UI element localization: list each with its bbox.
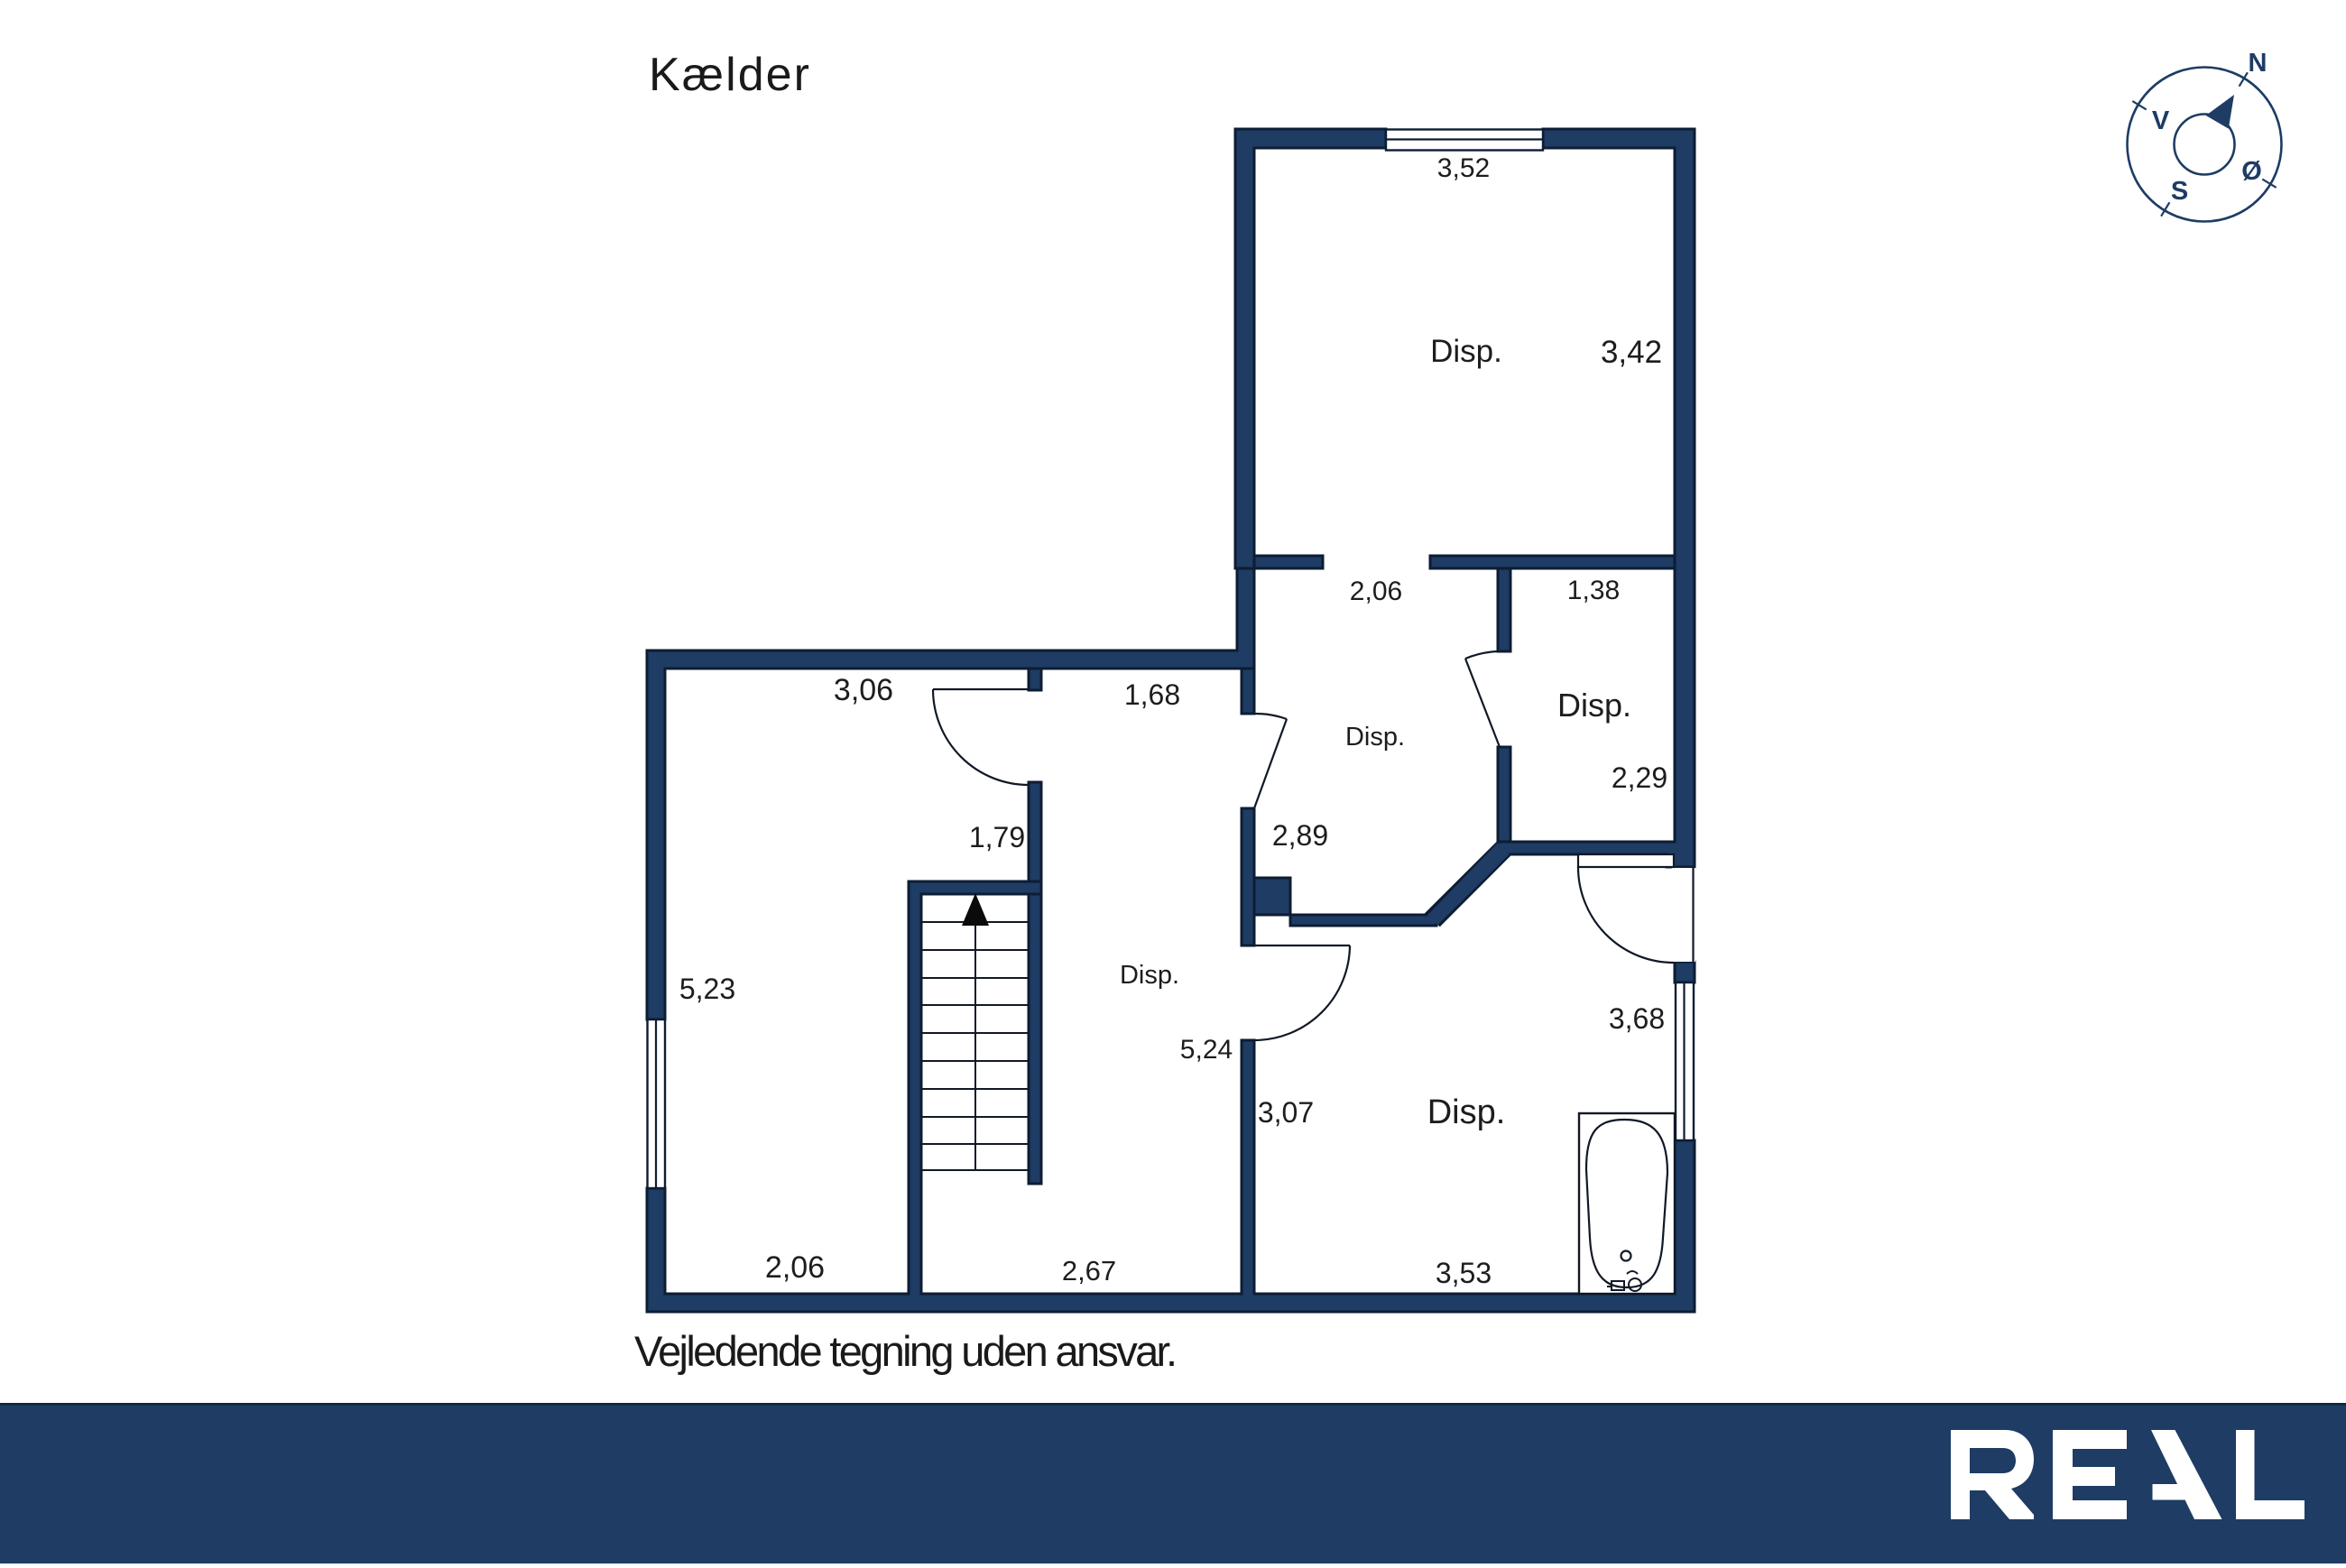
svg-text:5,23: 5,23 bbox=[679, 973, 735, 1005]
svg-text:V: V bbox=[2152, 106, 2170, 135]
svg-text:1,79: 1,79 bbox=[969, 821, 1025, 853]
svg-text:Vejledende tegning uden ansvar: Vejledende tegning uden ansvar. bbox=[634, 1327, 1178, 1375]
svg-text:3,53: 3,53 bbox=[1436, 1257, 1492, 1289]
svg-text:Disp.: Disp. bbox=[1430, 334, 1502, 369]
svg-text:5,24: 5,24 bbox=[1180, 1035, 1233, 1065]
svg-text:Kælder: Kælder bbox=[649, 49, 809, 101]
svg-text:Disp.: Disp. bbox=[1345, 723, 1405, 752]
svg-text:2,06: 2,06 bbox=[765, 1250, 825, 1285]
svg-text:3,42: 3,42 bbox=[1601, 335, 1662, 370]
svg-text:Ø: Ø bbox=[2241, 157, 2262, 186]
svg-text:3,07: 3,07 bbox=[1258, 1096, 1314, 1129]
svg-text:S: S bbox=[2171, 177, 2188, 206]
svg-text:N: N bbox=[2249, 49, 2267, 78]
svg-text:1,68: 1,68 bbox=[1124, 678, 1180, 711]
svg-text:Disp.: Disp. bbox=[1557, 687, 1631, 724]
svg-text:3,52: 3,52 bbox=[1437, 153, 1490, 183]
svg-text:2,89: 2,89 bbox=[1272, 819, 1328, 852]
svg-text:1,38: 1,38 bbox=[1567, 576, 1620, 605]
svg-text:2,06: 2,06 bbox=[1350, 576, 1402, 606]
svg-text:Disp.: Disp. bbox=[1427, 1093, 1506, 1131]
svg-text:3,68: 3,68 bbox=[1609, 1002, 1665, 1035]
svg-text:3,06: 3,06 bbox=[834, 673, 893, 707]
svg-text:2,67: 2,67 bbox=[1062, 1255, 1116, 1287]
svg-text:2,29: 2,29 bbox=[1612, 761, 1667, 794]
svg-text:Disp.: Disp. bbox=[1120, 961, 1179, 990]
